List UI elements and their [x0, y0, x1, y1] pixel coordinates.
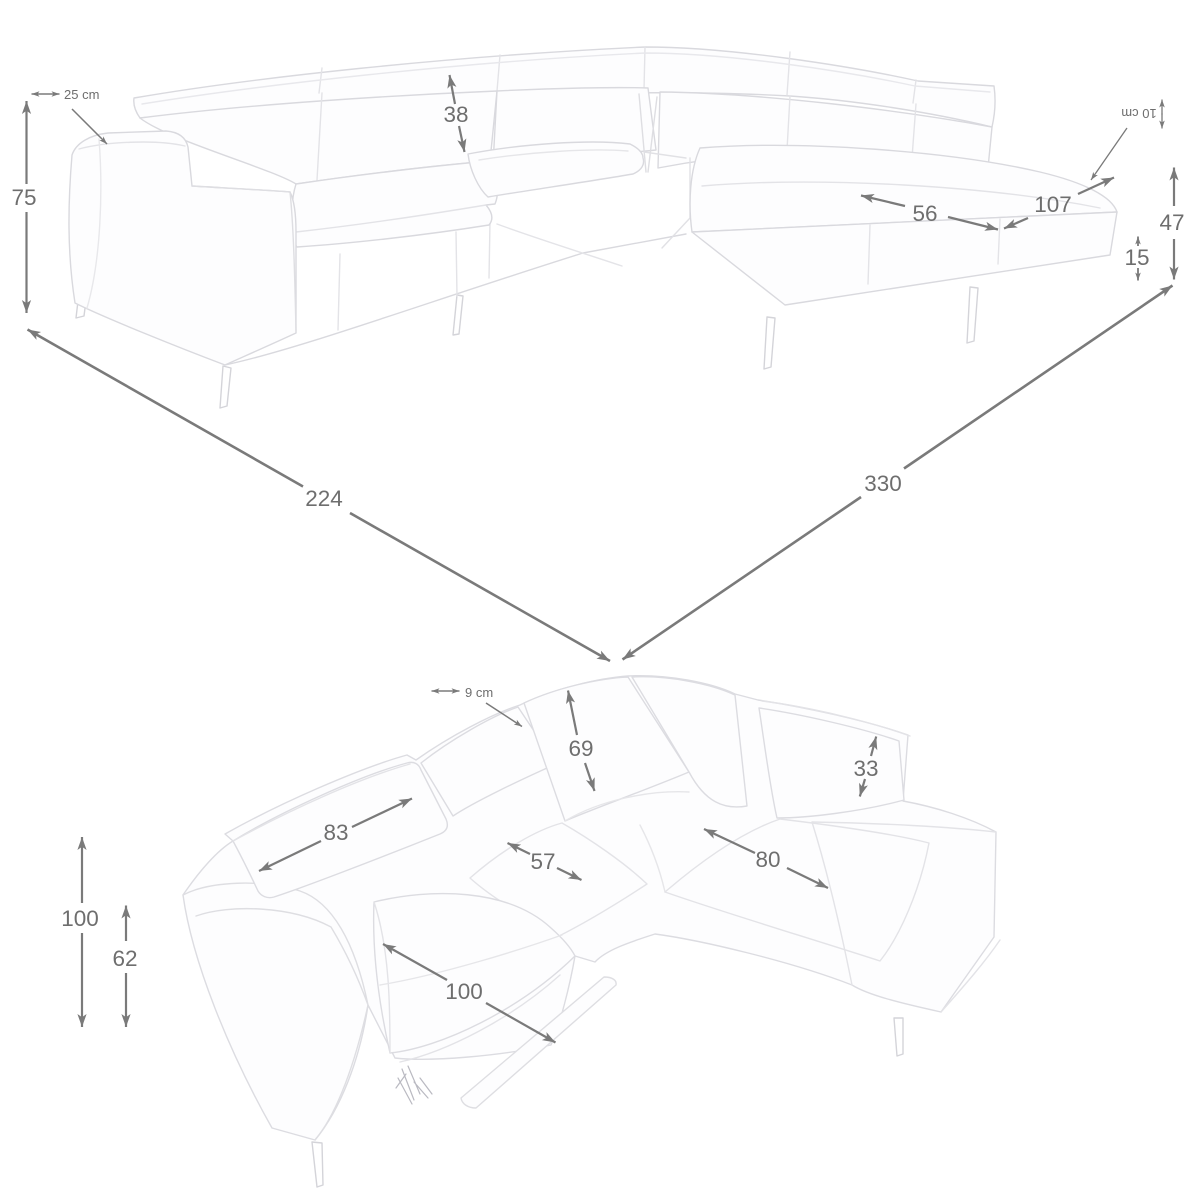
- svg-text:330: 330: [864, 471, 902, 496]
- svg-text:47: 47: [1159, 210, 1184, 235]
- svg-text:9 cm: 9 cm: [465, 685, 493, 700]
- svg-text:107: 107: [1034, 192, 1072, 217]
- svg-text:100: 100: [61, 906, 99, 931]
- svg-text:69: 69: [568, 736, 593, 761]
- svg-text:57: 57: [530, 849, 555, 874]
- svg-text:83: 83: [323, 820, 348, 845]
- svg-text:62: 62: [112, 946, 137, 971]
- svg-text:15: 15: [1124, 245, 1149, 270]
- svg-text:75: 75: [11, 185, 36, 210]
- svg-text:38: 38: [443, 102, 468, 127]
- svg-text:56: 56: [912, 201, 937, 226]
- svg-text:10 cm: 10 cm: [1121, 106, 1156, 121]
- svg-text:224: 224: [305, 486, 343, 511]
- svg-text:25 cm: 25 cm: [64, 87, 99, 102]
- svg-text:33: 33: [853, 756, 878, 781]
- svg-text:80: 80: [755, 847, 780, 872]
- svg-text:100: 100: [445, 979, 483, 1004]
